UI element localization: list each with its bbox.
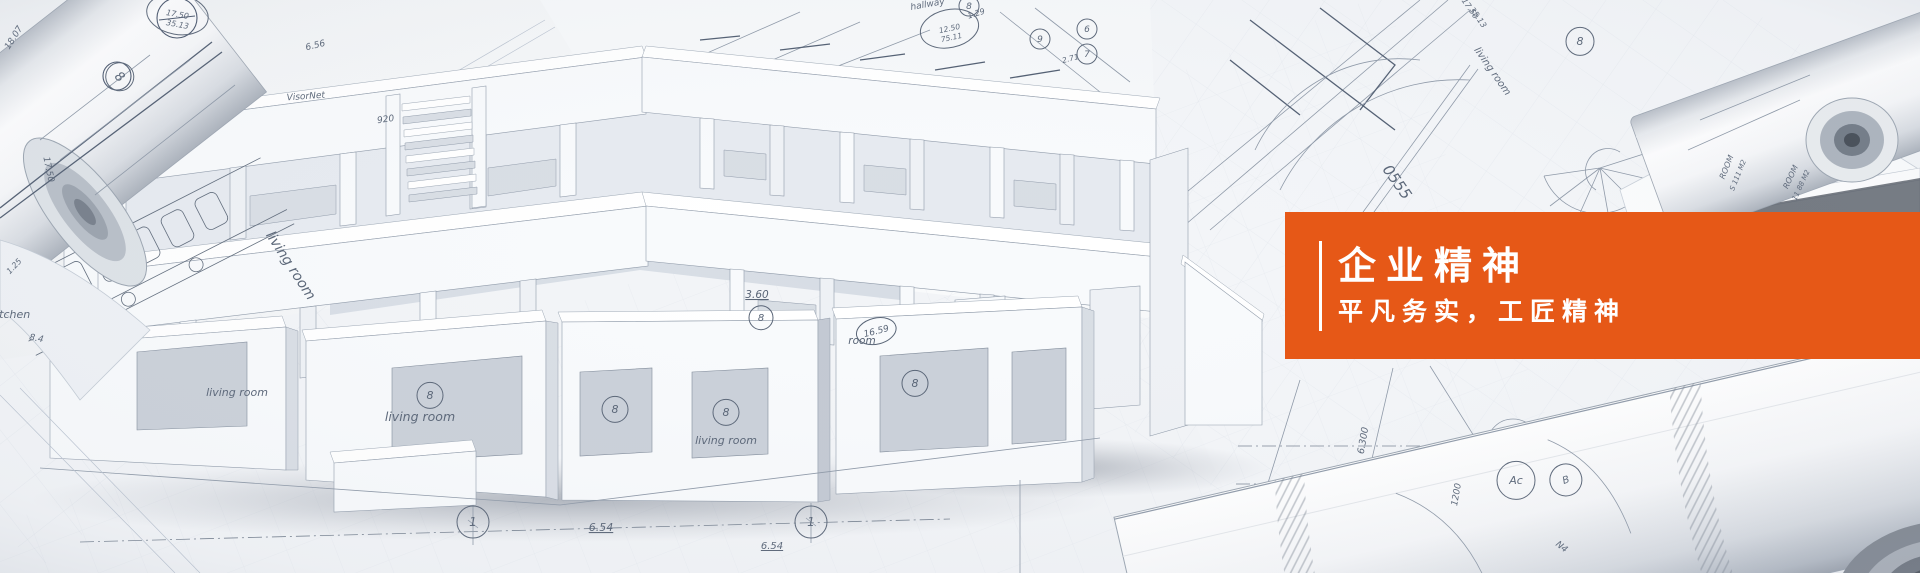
spirit-banner: 企业精神 平凡务实，工匠精神 xyxy=(1285,212,1920,359)
banner-subtitle: 平凡务实，工匠精神 xyxy=(1338,299,1626,324)
banner-divider-line xyxy=(1319,241,1322,331)
hero-banner: living room817.5035.1318.0717.50kitchen8… xyxy=(0,0,1920,573)
banner-text-block: 企业精神 平凡务实，工匠精神 xyxy=(1338,247,1626,325)
banner-title: 企业精神 xyxy=(1338,247,1626,287)
